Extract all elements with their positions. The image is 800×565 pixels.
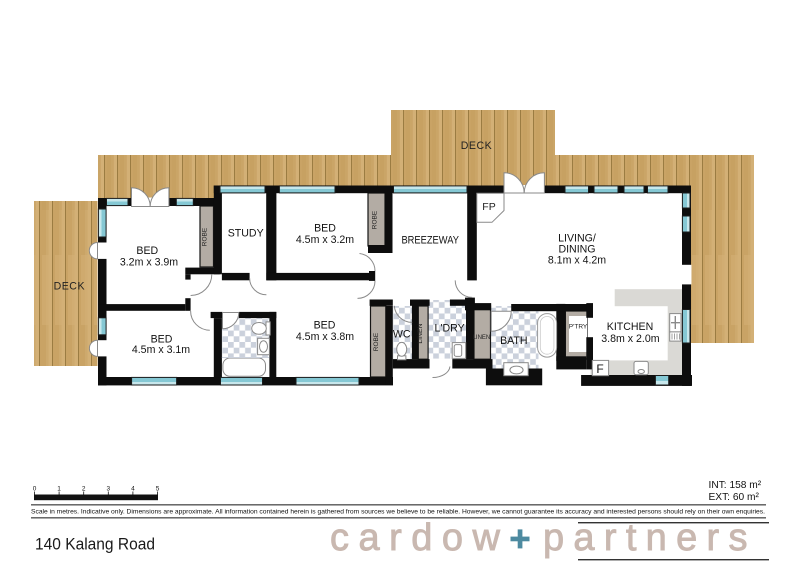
svg-text:LINEN: LINEN <box>417 324 424 344</box>
svg-text:INT: 158 m²: INT: 158 m² <box>709 480 762 491</box>
svg-text:ROBE: ROBE <box>202 227 209 246</box>
svg-text:LINEN: LINEN <box>473 335 491 341</box>
svg-text:BED: BED <box>314 320 336 332</box>
svg-text:3: 3 <box>106 486 110 493</box>
svg-text:L'DRY: L'DRY <box>435 323 465 335</box>
svg-text:FP: FP <box>482 201 495 213</box>
svg-text:BATH: BATH <box>500 335 527 347</box>
svg-text:BED: BED <box>314 222 336 234</box>
svg-text:P'TRY: P'TRY <box>569 323 588 330</box>
svg-text:4.5m x 3.8m: 4.5m x 3.8m <box>296 331 354 343</box>
svg-text:3.2m x 3.9m: 3.2m x 3.9m <box>120 257 178 269</box>
svg-text:1: 1 <box>57 486 61 493</box>
svg-text:DECK: DECK <box>461 140 492 152</box>
svg-text:BED: BED <box>136 245 158 257</box>
svg-text:4.5m x 3.1m: 4.5m x 3.1m <box>132 344 190 356</box>
svg-text:F: F <box>596 362 603 376</box>
svg-text:Scale in metres. Indicative on: Scale in metres. Indicative only. Dimens… <box>31 509 765 516</box>
svg-text:8.1m x 4.2m: 8.1m x 4.2m <box>548 255 606 267</box>
svg-text:4.5m x 3.2m: 4.5m x 3.2m <box>296 234 354 246</box>
svg-text:LIVING/: LIVING/ <box>558 233 596 245</box>
svg-text:5: 5 <box>156 486 160 493</box>
svg-text:DECK: DECK <box>54 280 85 292</box>
svg-text:ROBE: ROBE <box>373 332 380 351</box>
svg-text:EXT: 60 m²: EXT: 60 m² <box>709 492 760 503</box>
svg-text:BREEZEWAY: BREEZEWAY <box>401 235 459 247</box>
svg-text:WC: WC <box>393 329 411 341</box>
svg-text:cardow: cardow <box>330 517 510 559</box>
svg-text:3.8m x 2.0m: 3.8m x 2.0m <box>601 333 659 345</box>
svg-text:KITCHEN: KITCHEN <box>607 321 654 333</box>
svg-text:STUDY: STUDY <box>228 227 264 239</box>
svg-text:2: 2 <box>82 486 86 493</box>
svg-text:4: 4 <box>131 486 135 493</box>
svg-text:ROBE: ROBE <box>372 210 379 229</box>
svg-text:140 Kalang Road: 140 Kalang Road <box>35 535 155 554</box>
svg-text:0: 0 <box>33 486 37 493</box>
